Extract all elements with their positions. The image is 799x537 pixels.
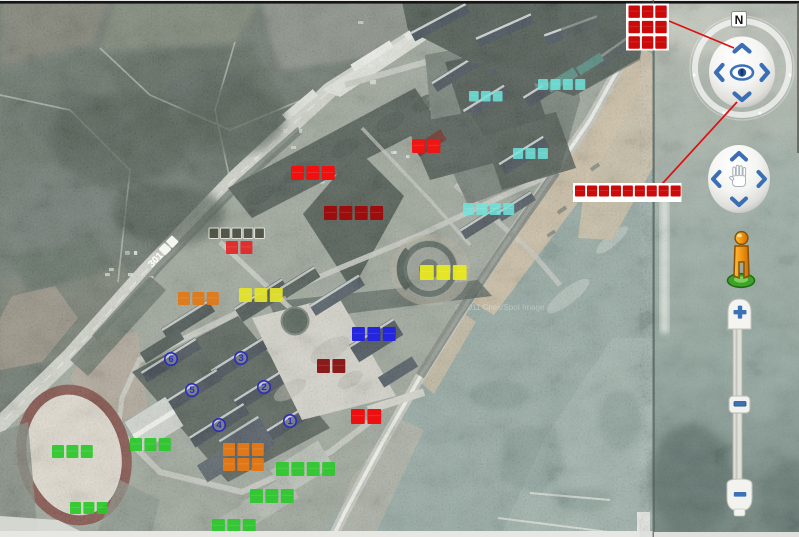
svg-text:5: 5 [189,385,195,396]
svg-text:2: 2 [261,382,266,393]
svg-text:4: 4 [216,420,222,431]
svg-text:N: N [735,13,744,27]
svg-text:3: 3 [238,353,243,364]
svg-text:1: 1 [287,416,293,427]
svg-text:6: 6 [168,354,173,365]
